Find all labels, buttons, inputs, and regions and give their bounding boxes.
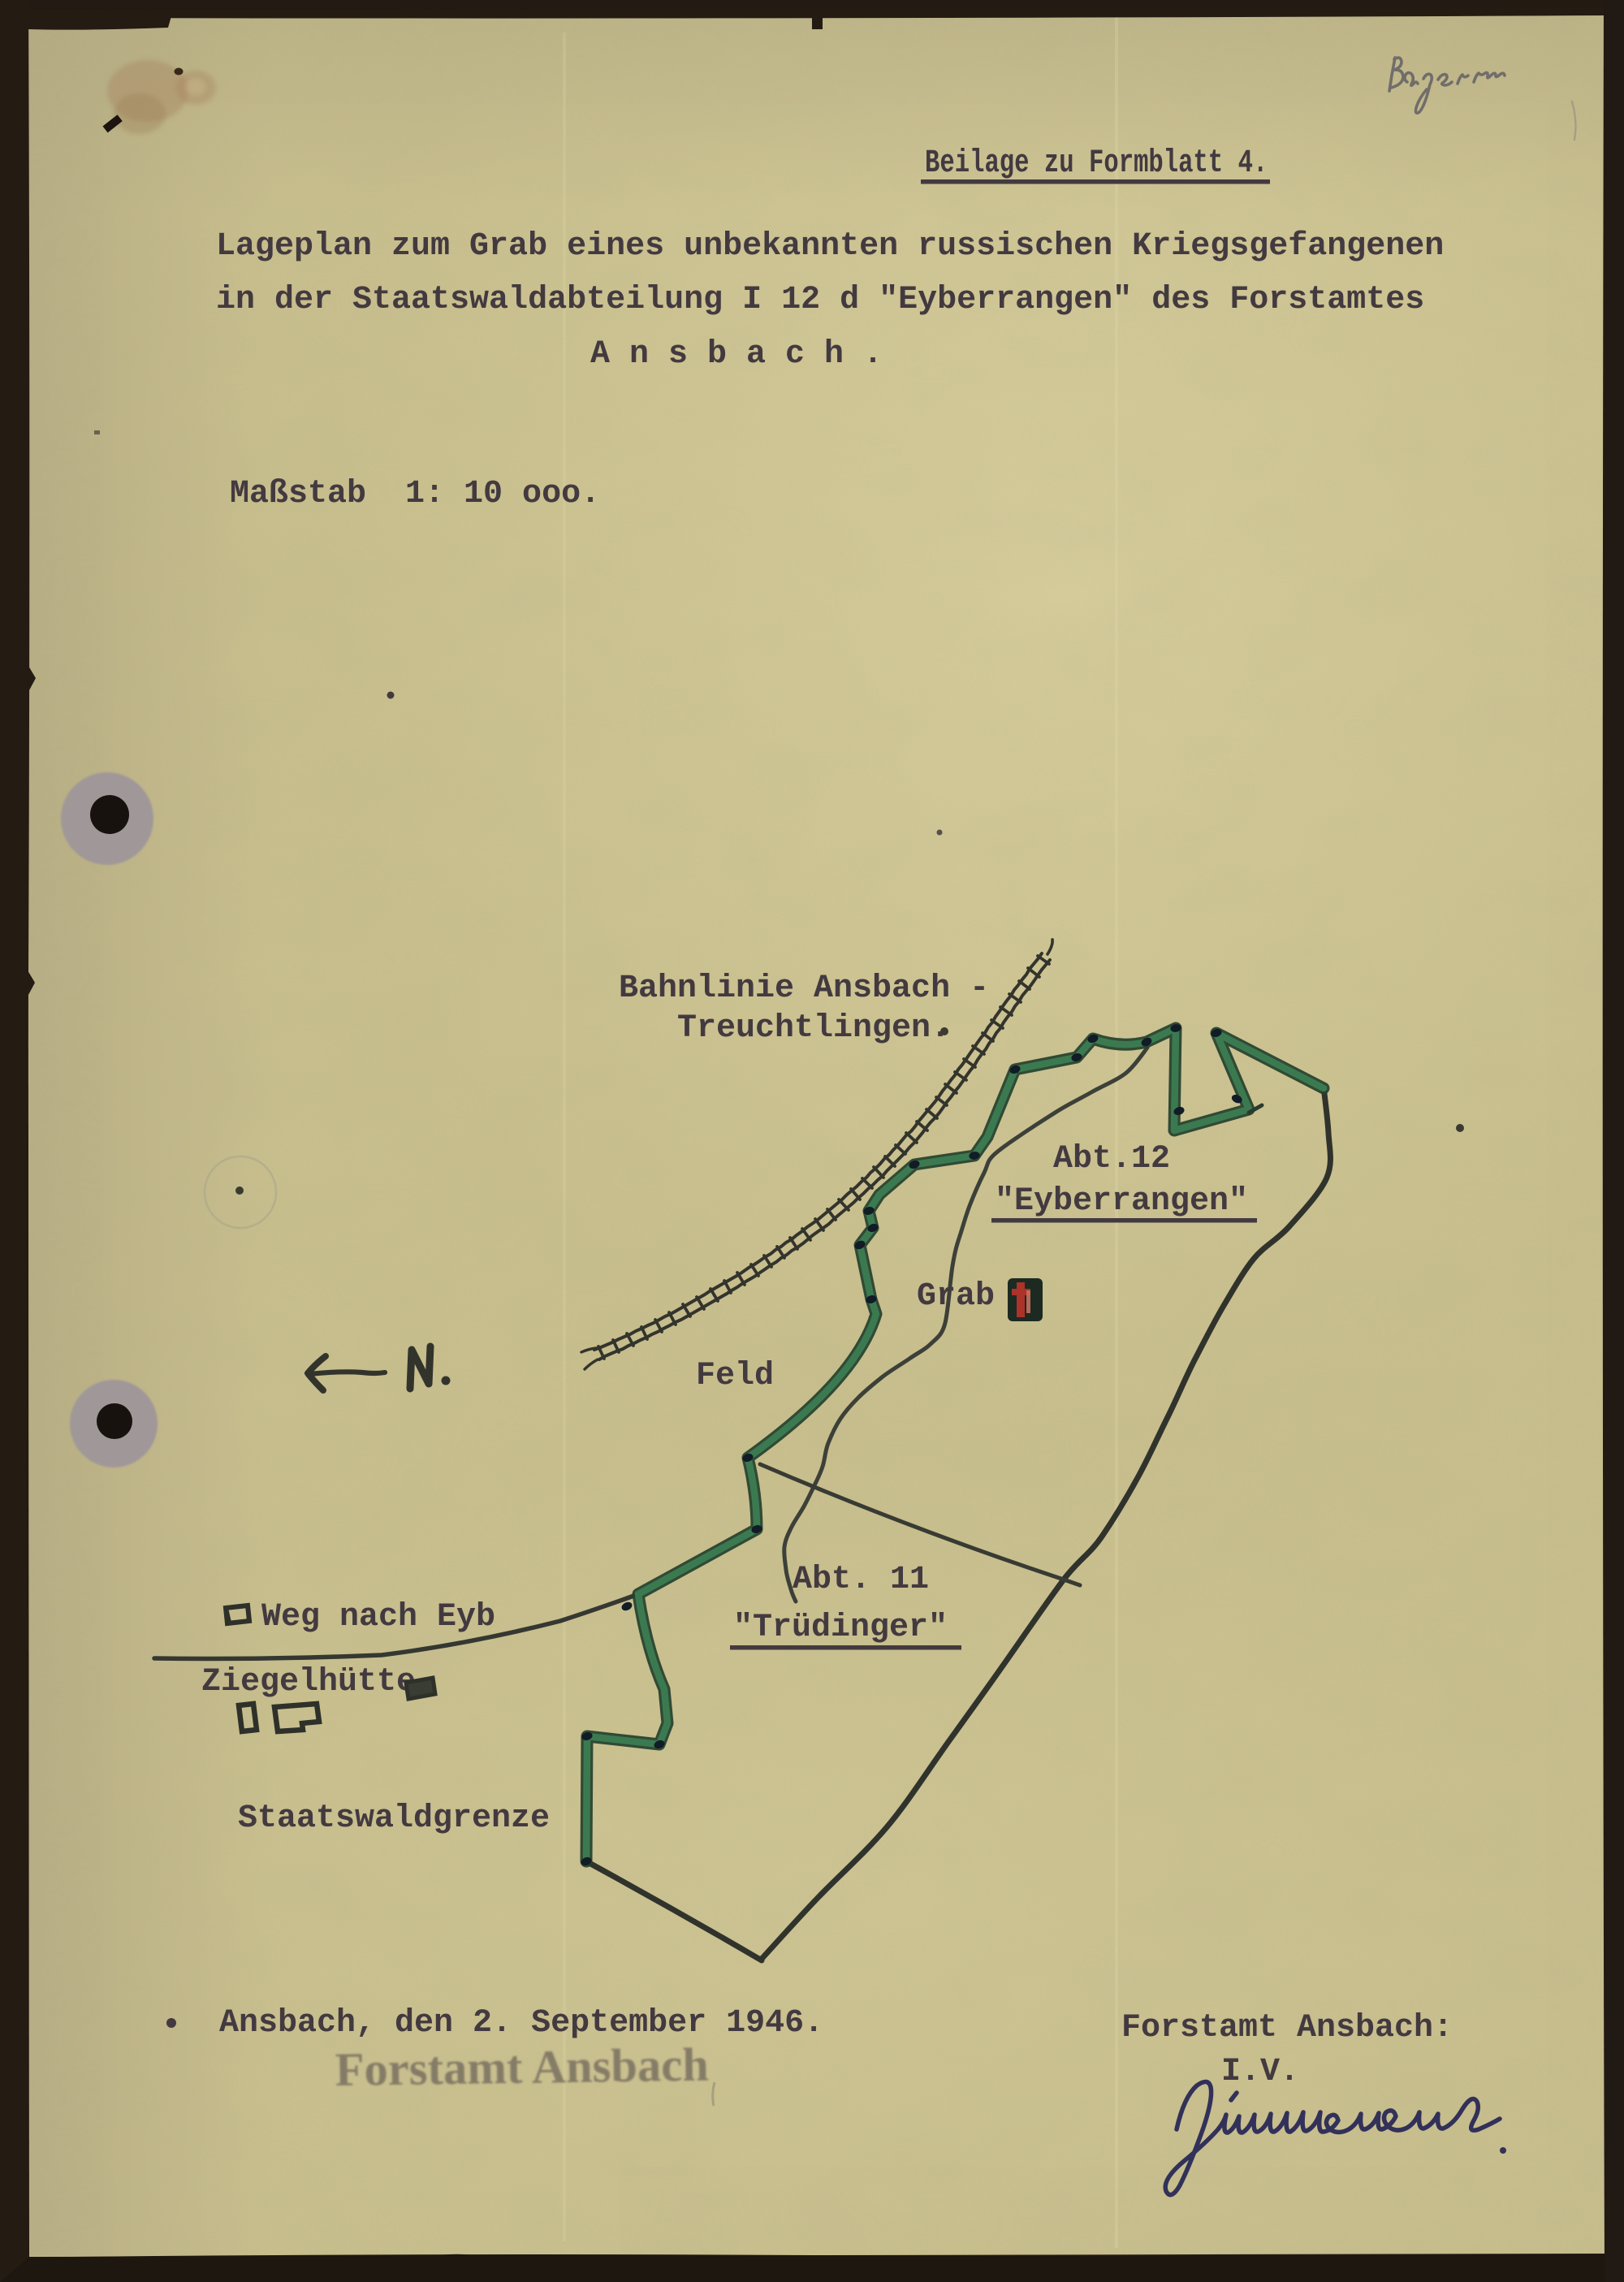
svg-text:Abt. 11: Abt. 11 <box>793 1562 929 1598</box>
svg-text:Grab: Grab <box>917 1278 995 1315</box>
svg-text:A n s b a c h .: A n s b a c h . <box>590 336 883 373</box>
svg-text:Ansbach, den 2. September 1946: Ansbach, den 2. September 1946. <box>219 2005 823 2042</box>
svg-text:Weg nach Eyb: Weg nach Eyb <box>261 1599 495 1636</box>
svg-text:Forstamt Ansbach: Forstamt Ansbach <box>335 2038 709 2096</box>
svg-text:Staatswaldgrenze: Staatswaldgrenze <box>238 1800 550 1837</box>
svg-text:I.V.: I.V. <box>1221 2054 1299 2090</box>
svg-text:in der Staatswaldabteilung I 1: in der Staatswaldabteilung I 12 d "Eyber… <box>216 282 1424 318</box>
svg-text:Ziegelhütte: Ziegelhütte <box>201 1664 416 1701</box>
svg-text:Treuchtlingen.: Treuchtlingen. <box>677 1010 950 1047</box>
svg-text:Forstamt Ansbach:: Forstamt Ansbach: <box>1121 2010 1453 2046</box>
svg-text:"Eyberrangen": "Eyberrangen" <box>995 1183 1248 1220</box>
svg-text:"Trüdinger": "Trüdinger" <box>733 1610 948 1646</box>
svg-text:Beilage zu Formblatt 4.: Beilage zu Formblatt 4. <box>925 144 1268 181</box>
svg-text:Lageplan zum Grab eines unbeka: Lageplan zum Grab eines unbekannten russ… <box>216 228 1444 265</box>
svg-text:Feld: Feld <box>696 1358 774 1394</box>
svg-text:Abt.12: Abt.12 <box>1053 1141 1170 1178</box>
svg-text:Maßstab 1: 10 ooo.: Maßstab 1: 10 ooo. <box>230 476 600 512</box>
svg-text:Bahnlinie Ansbach -: Bahnlinie Ansbach - <box>619 970 989 1007</box>
